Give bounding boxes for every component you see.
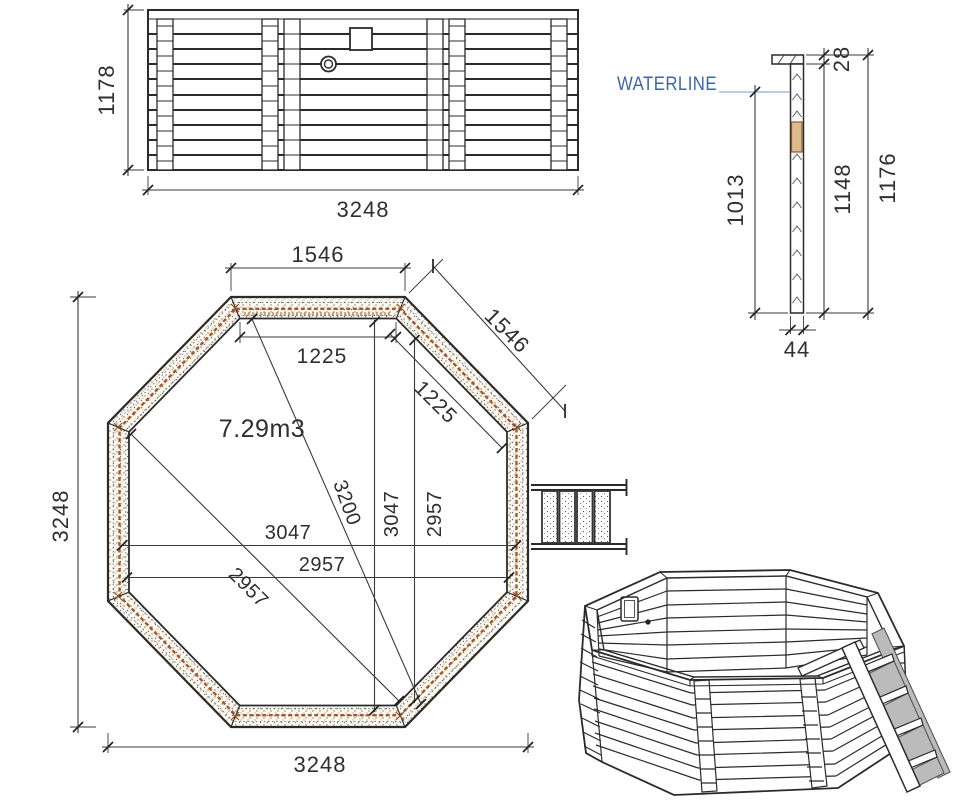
plan-inner-octagon (129, 319, 507, 706)
step-tread (595, 491, 611, 543)
waterline-label: WATERLINE (617, 74, 717, 95)
perspective-view (579, 570, 950, 795)
plan-steps (531, 479, 627, 555)
dim-water-depth: 1013 (723, 174, 748, 227)
section-joint-infill (792, 122, 803, 152)
inlet-circle-inner (325, 60, 333, 68)
dim-wall-height: 1148 (830, 163, 855, 214)
step-tread (560, 491, 576, 543)
drawing-canvas: 1178 3248 WATERLINE 28 1013 1148 1176 44 (0, 0, 980, 804)
plan-view: 1546 1546 1225 1225 7.29m3 3248 3248 304… (48, 242, 627, 777)
dim-plan-diagonal-edge: 1546 (480, 303, 535, 358)
dim-plan-inner-top: 1225 (297, 345, 348, 368)
volume-label: 7.29m3 (219, 415, 305, 443)
dim-elevation-width: 3248 (337, 197, 390, 222)
dim-elevation-height: 1178 (94, 64, 119, 115)
dim-total-height: 1176 (875, 152, 900, 203)
inlet-3d-dot (645, 619, 650, 624)
step-tread (542, 491, 558, 543)
dim-plan-inner-height-a: 3047 (381, 491, 403, 538)
dim-plan-inner-width-b: 2957 (299, 554, 346, 576)
skimmer-square (350, 28, 372, 50)
section-coping (772, 55, 804, 64)
dim-plan-inner-width-a: 3047 (265, 522, 312, 544)
section-view: WATERLINE 28 1013 1148 1176 44 (617, 46, 900, 362)
dim-plan-overall-height: 3248 (48, 490, 73, 543)
dim-wall-thickness: 44 (784, 337, 810, 362)
step-tread (577, 491, 593, 543)
dim-plan-overall-width: 3248 (294, 752, 347, 777)
elevation-view: 1178 3248 (94, 4, 584, 222)
technical-drawing-sheet: 1178 3248 WATERLINE 28 1013 1148 1176 44 (0, 0, 980, 804)
section-wall (791, 64, 804, 313)
dim-plan-top-edge: 1546 (292, 242, 345, 267)
dim-plan-inner-height-b: 2957 (424, 491, 446, 538)
dim-rim-height: 28 (829, 46, 854, 72)
section-extension-lines (748, 55, 874, 334)
